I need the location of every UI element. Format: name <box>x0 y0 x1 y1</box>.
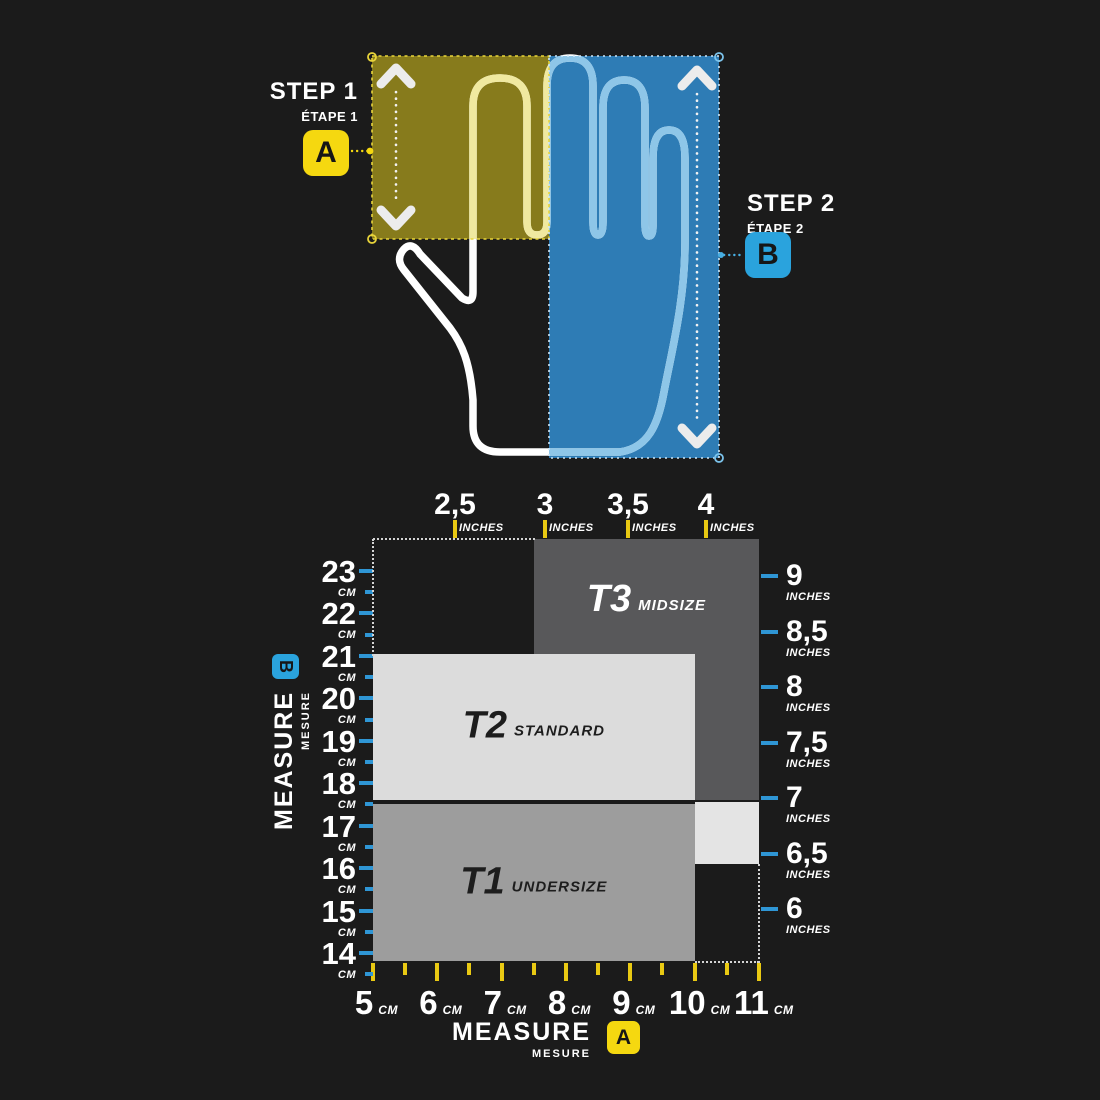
right-axis-tick <box>761 630 778 634</box>
right-axis-value: 7INCHES <box>786 783 831 825</box>
left-axis-tick <box>359 654 373 658</box>
top-axis-tick <box>626 520 630 538</box>
bottom-axis-value: 5CM <box>355 986 398 1019</box>
bottom-axis-minor-tick <box>596 963 600 975</box>
zone-size-code: T2 <box>463 710 507 740</box>
zone-t2-label: T2STANDARD <box>463 710 605 740</box>
bottom-axis-minor-tick <box>403 963 407 975</box>
chart-border-right <box>758 864 760 963</box>
left-axis-value: 23CM <box>296 556 356 599</box>
chart-border-top <box>373 538 535 540</box>
zone-size-name: STANDARD <box>514 724 605 741</box>
bottom-axis-minor-tick <box>532 963 536 975</box>
zone-size-name: UNDERSIZE <box>512 880 608 897</box>
top-axis-tick <box>453 520 457 538</box>
right-axis-value: 7,5INCHES <box>786 728 831 770</box>
bottom-axis-tick <box>757 963 761 981</box>
left-axis-tick <box>359 739 373 743</box>
zone-size-code: T1 <box>460 866 504 896</box>
top-axis-unit: INCHES <box>549 522 594 534</box>
left-axis-minor-tick <box>365 972 373 976</box>
top-axis-value: 4 <box>698 490 715 520</box>
chart-border-left <box>372 539 374 656</box>
zone-t1: T1UNDERSIZE <box>373 804 695 961</box>
left-axis-tick <box>359 866 373 870</box>
right-axis-tick <box>761 685 778 689</box>
right-axis-value: 8INCHES <box>786 672 831 714</box>
right-axis-value: 9INCHES <box>786 561 831 603</box>
measure-a-subtext: MESURE <box>532 1048 591 1060</box>
measure-a-badge: A <box>607 1021 640 1054</box>
right-axis-value: 8,5INCHES <box>786 617 831 659</box>
measure-b-text: MEASURE <box>272 691 297 830</box>
zone-t1-label: T1UNDERSIZE <box>460 866 607 896</box>
bottom-axis-value: 8CM <box>548 986 591 1019</box>
top-axis-tick <box>543 520 547 538</box>
left-axis-minor-tick <box>365 802 373 806</box>
left-axis-tick <box>359 611 373 615</box>
right-axis-tick <box>761 852 778 856</box>
top-axis-unit: INCHES <box>459 522 504 534</box>
bottom-axis-tick <box>564 963 568 981</box>
bottom-axis-minor-tick <box>725 963 729 975</box>
chart-border-bottom <box>695 961 759 963</box>
right-axis-value: 6,5INCHES <box>786 839 831 881</box>
zone-overlap <box>695 802 759 864</box>
left-axis-minor-tick <box>365 887 373 891</box>
zone-t3-label: T3MIDSIZE <box>587 584 706 614</box>
top-axis-value: 3 <box>537 490 554 520</box>
top-axis-unit: INCHES <box>632 522 677 534</box>
left-axis-tick <box>359 909 373 913</box>
left-axis-minor-tick <box>365 718 373 722</box>
zone-t2: T2STANDARD <box>373 654 695 800</box>
left-axis-tick <box>359 824 373 828</box>
top-axis-tick <box>704 520 708 538</box>
top-axis-value: 3,5 <box>607 490 649 520</box>
size-chart: T3MIDSIZET2STANDARDT1UNDERSIZE5CM6CM7CM8… <box>0 0 1100 1100</box>
left-axis-tick <box>359 781 373 785</box>
left-axis-tick <box>359 569 373 573</box>
bottom-axis-minor-tick <box>660 963 664 975</box>
left-axis-minor-tick <box>365 760 373 764</box>
left-axis-value: 22CM <box>296 598 356 641</box>
left-axis-tick <box>359 951 373 955</box>
measure-b-label: MEASURE MESURE B <box>272 654 324 830</box>
bottom-axis-tick <box>693 963 697 981</box>
bottom-axis-tick <box>500 963 504 981</box>
left-axis-value: 14CM <box>296 938 356 981</box>
left-axis-minor-tick <box>365 930 373 934</box>
top-axis-value: 2,5 <box>434 490 476 520</box>
bottom-axis-value: 9CM <box>612 986 655 1019</box>
zone-size-code: T3 <box>587 584 631 614</box>
left-axis-value: 15CM <box>296 896 356 939</box>
measure-a-label: MEASURE MESURE A <box>452 1020 640 1060</box>
left-axis-minor-tick <box>365 845 373 849</box>
bottom-axis-value: 11CM <box>734 986 794 1019</box>
measure-b-subtext: MESURE <box>300 691 312 750</box>
bottom-axis-value: 10CM <box>669 986 730 1019</box>
zone-size-name: MIDSIZE <box>638 598 706 615</box>
right-axis-value: 6INCHES <box>786 894 831 936</box>
top-axis-unit: INCHES <box>710 522 755 534</box>
bottom-axis-tick <box>628 963 632 981</box>
bottom-axis-value: 7CM <box>484 986 527 1019</box>
bottom-axis-value: 6CM <box>419 986 462 1019</box>
measure-a-text: MEASURE <box>452 1020 591 1045</box>
left-axis-minor-tick <box>365 675 373 679</box>
measure-b-badge: B <box>272 654 299 679</box>
right-axis-tick <box>761 574 778 578</box>
right-axis-tick <box>761 907 778 911</box>
left-axis-tick <box>359 696 373 700</box>
left-axis-value: 16CM <box>296 853 356 896</box>
right-axis-tick <box>761 741 778 745</box>
bottom-axis-minor-tick <box>467 963 471 975</box>
bottom-axis-tick <box>435 963 439 981</box>
right-axis-tick <box>761 796 778 800</box>
